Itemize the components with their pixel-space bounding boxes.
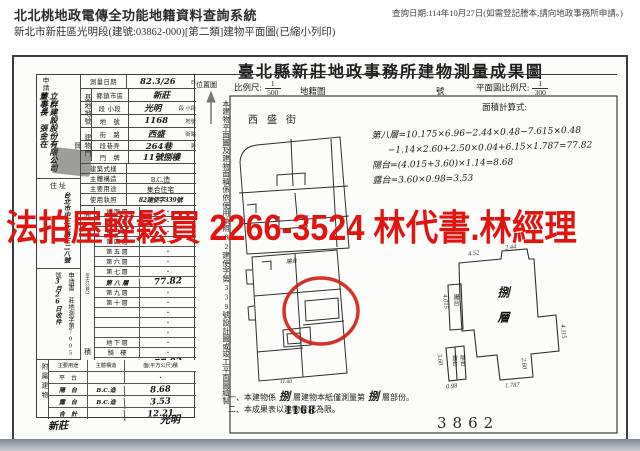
applicant-section: 申請人姓名 立群建設股份有限公司 董事長 張金在	[37, 75, 81, 179]
annex-header-row: 主要用途 主體構造 面(平方公尺)積	[49, 360, 196, 372]
dim-right: 4.115	[559, 324, 567, 339]
floor-area-row: 第 六 層 ・	[95, 257, 196, 267]
door-plate-group-label: 建物門牌	[81, 128, 92, 161]
eighth-floor-label: 捌層	[495, 286, 512, 346]
scale-label: 比例尺:	[234, 82, 262, 92]
plan-scale: 平面圖比例尺:1300	[476, 80, 551, 97]
info-row: 測量日期 82.3/26 日	[81, 75, 196, 89]
cadastral-map-label: 地籍圖	[300, 85, 326, 97]
scan-bottom-shadow	[0, 439, 640, 451]
annex-group-section: 附屬建物	[37, 360, 49, 419]
info-row: 段巷弄 264巷 弄	[81, 141, 196, 151]
application-number: 申請書 莊地測字第7005號3月26日收件	[51, 272, 77, 357]
address-label: 住址	[37, 181, 81, 191]
area-formulas: 第八層=10.175×6.96−2.44×0.48−7.615×0.48−1.1…	[371, 123, 620, 189]
street-name-label: 西盛街	[248, 111, 305, 126]
balcony-label: 陽台	[451, 294, 460, 328]
info-row: 鄉鎮市區 新莊	[81, 89, 196, 102]
dim-bottom: 1.787	[505, 382, 520, 390]
note-1: 一、本建物係捌層建物本紙僅測量第捌層部份。	[228, 388, 414, 404]
terrace-label: 露台	[450, 355, 458, 381]
info-row: 主要用途 集合住宅	[81, 184, 196, 194]
map-balcony-handwritten: 陽台	[286, 257, 298, 266]
info-row: 建築式樣	[81, 164, 196, 174]
floor-area-row: ・	[95, 328, 196, 338]
land-registry-query-screen: 北北桃地政電傳全功能地籍資料查詢系統 新北市新莊區光明段(建號:03862-00…	[0, 0, 640, 451]
annex-row: 平 台 ・	[49, 372, 196, 384]
location-map-label: 位置圖	[196, 80, 217, 90]
plan-scale-fraction: 1300	[532, 80, 548, 97]
plan-scale-label: 平面圖比例尺:	[476, 82, 529, 92]
floor-area-row: 地 下 層 ・	[95, 338, 196, 348]
floor-area-row: ・	[95, 318, 196, 328]
sheet-number-label: 號	[436, 85, 445, 97]
floor-area-row: 第 八 層 77.82	[95, 277, 196, 288]
application-date-handwritten: 3月26日收件	[54, 278, 61, 324]
annex-group-label: 附屬建物	[38, 363, 48, 401]
parcel-number: 1168	[285, 402, 316, 418]
info-row: 門 牌 11號捌樓	[81, 151, 196, 164]
document-subtitle: 新北市新莊區光明段(建號:03862-000)[第二類]建物平面圖(已縮小列印)	[14, 24, 335, 39]
application-section: 申請書 莊地測字第7005號3月26日收件	[37, 269, 81, 360]
dim-left-lower: 3.60	[436, 353, 444, 365]
balcony2-label: 陽台	[458, 355, 466, 381]
district-handwritten: 新莊	[48, 416, 69, 432]
scale-fraction: 1500	[265, 80, 281, 97]
annex-row: 露 台 B.C.造 3.53	[49, 396, 196, 408]
note-2: 二、本成果表以建物登記為限。	[228, 404, 340, 415]
info-row: 主體構造 B.C.造	[81, 174, 196, 184]
site-number-group-label: 基地地號	[81, 89, 92, 128]
measured-floor-handwritten: 捌	[368, 390, 379, 403]
annex-row: 陽 台 B.C.造 8.68	[49, 384, 196, 396]
info-row: 街 路 西盛 街路	[81, 128, 196, 141]
query-date-note: 查詢日期:114年10月27日(如需登記謄本,請向地政事務所申請。)	[392, 7, 623, 19]
floor-area-row: 第 九 層 ・	[95, 288, 196, 298]
floor-area-row: 第 十 層 ・	[95, 298, 196, 308]
dim-bottom-left: 0.98	[446, 382, 458, 390]
info-row: 段 小段 光明 段 小段	[81, 102, 196, 115]
system-title: 北北桃地政電傳全功能地籍資料查詢系統	[14, 5, 257, 24]
cadastral-scale: 比例尺:1500	[234, 80, 284, 97]
building-number: 3862	[437, 414, 499, 432]
floor-area-row: ・	[95, 308, 196, 318]
dim-bottom-mid: 2.60	[520, 357, 528, 369]
section-handwritten: 光明	[160, 411, 181, 427]
map-dimension-handwritten: 11.60	[280, 379, 292, 385]
foreclosure-ad-watermark: 法拍屋輕鬆買 2266-3524 林代書.林經理	[6, 199, 577, 251]
info-row: 地 號 1168 地號	[81, 115, 196, 128]
area-formula-label: 面積計算式:	[482, 101, 527, 113]
side-note-vertical: 本建物平面圖及建物面積係依使用執照82建使字第339號設計圖或竣工平面圖繪製	[206, 100, 232, 432]
dim-left: 4.015	[441, 294, 449, 309]
survey-result-title: 臺北縣新莊地政事務所建物測量成果圖	[238, 58, 544, 82]
info-rows: 測量日期 82.3/26 日 鄉鎮市區 新莊 段 小段 光明 段 小段 地 號 …	[81, 75, 196, 207]
